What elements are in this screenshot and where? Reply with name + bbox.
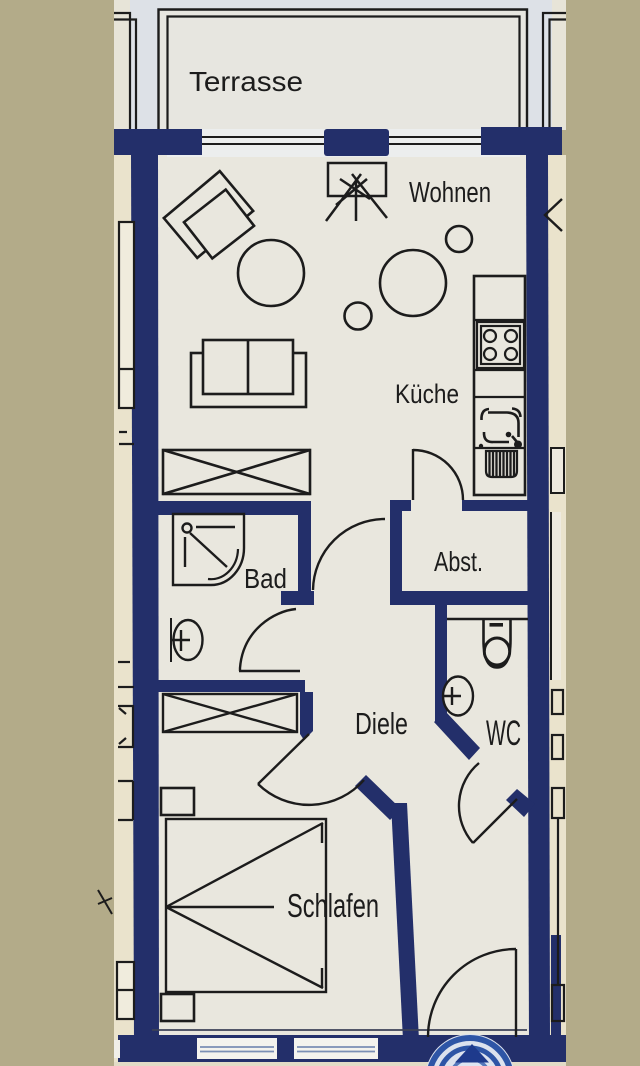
svg-text:WC: WC	[486, 714, 521, 753]
svg-text:Bad: Bad	[244, 563, 287, 594]
svg-text:Küche: Küche	[395, 379, 459, 409]
svg-text:Schlafen: Schlafen	[287, 887, 379, 924]
svg-text:Diele: Diele	[355, 706, 408, 741]
svg-text:Abst.: Abst.	[434, 546, 483, 577]
svg-text:Terrasse: Terrasse	[189, 66, 303, 97]
svg-text:Wohnen: Wohnen	[409, 177, 491, 209]
